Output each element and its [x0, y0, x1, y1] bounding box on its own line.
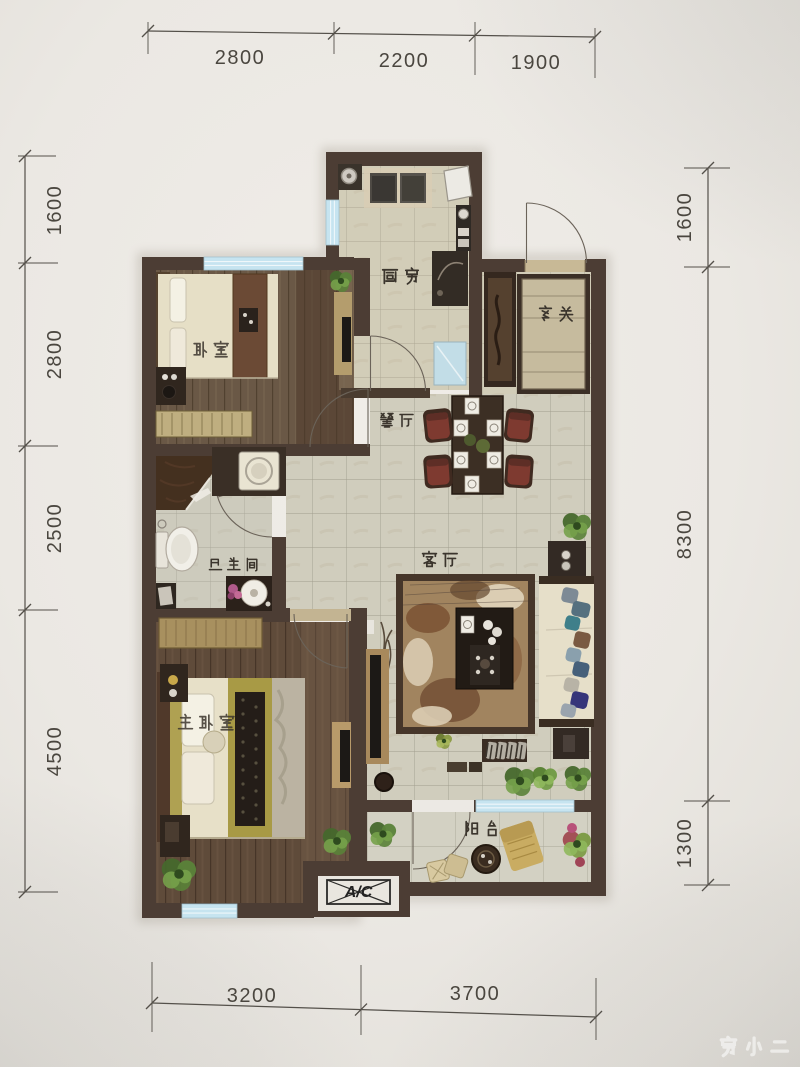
svg-text:8300: 8300	[674, 509, 696, 560]
svg-text:1600: 1600	[44, 185, 66, 236]
svg-text:4500: 4500	[44, 726, 66, 777]
svg-text:1900: 1900	[511, 52, 562, 74]
svg-text:3700: 3700	[450, 983, 501, 1005]
svg-text:3200: 3200	[227, 985, 278, 1007]
svg-text:2500: 2500	[44, 503, 66, 554]
svg-text:A/C: A/C	[344, 884, 373, 901]
svg-text:2200: 2200	[379, 50, 430, 72]
svg-text:1300: 1300	[674, 818, 696, 869]
svg-text:1600: 1600	[674, 192, 696, 243]
svg-text:2800: 2800	[215, 47, 266, 69]
svg-text:2800: 2800	[44, 329, 66, 380]
